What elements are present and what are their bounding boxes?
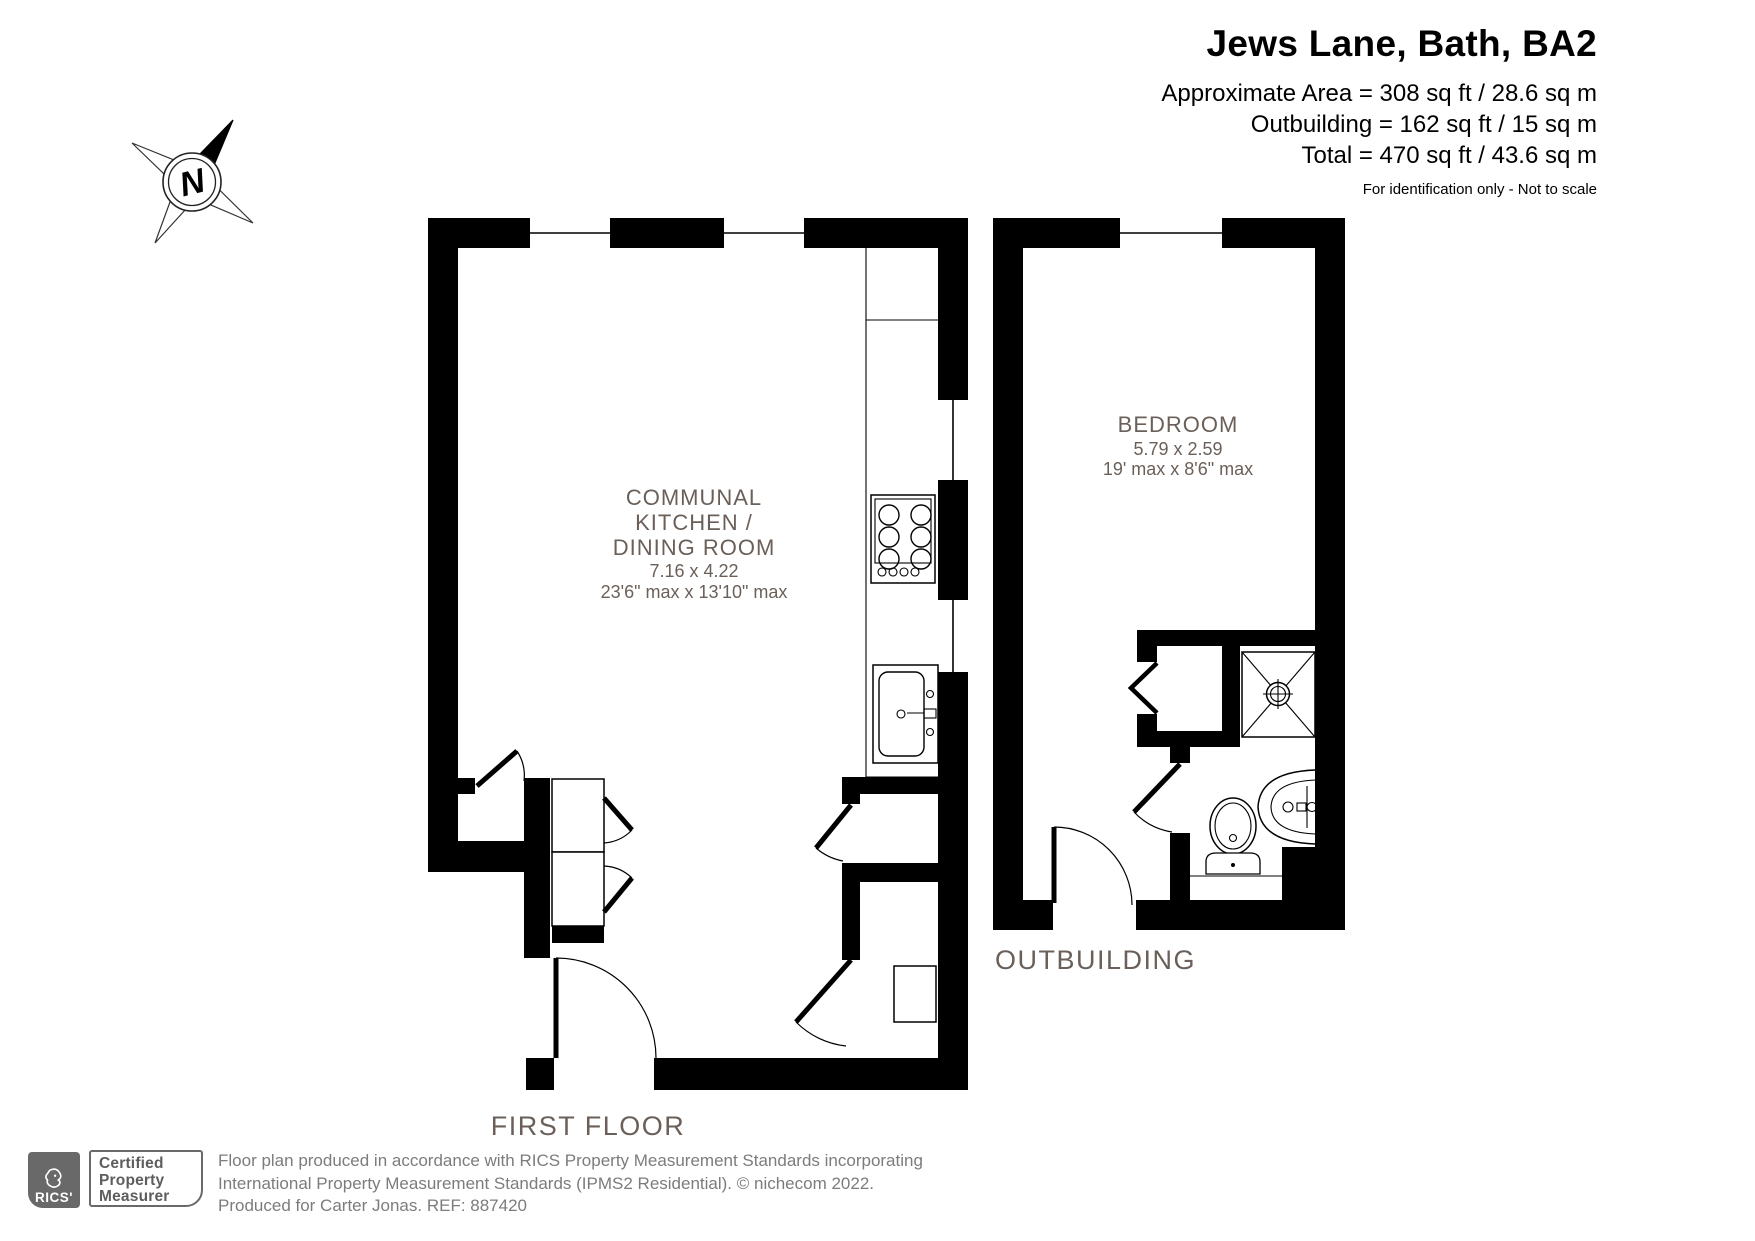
bifold-door: [1131, 663, 1157, 713]
certified-measurer-badge: Certified Property Measurer: [89, 1150, 203, 1207]
window: [938, 600, 968, 672]
kitchen-dims-imperial: 23'6" max x 13'10" max: [601, 582, 788, 602]
rics-lion-icon: [41, 1167, 67, 1191]
door-swing: [477, 751, 524, 786]
wall-segment: [1137, 630, 1315, 646]
wall-segment: [1137, 731, 1240, 747]
kitchen-dims-metric: 7.16 x 4.22: [649, 561, 738, 581]
wall-segment: [1137, 714, 1157, 731]
bedroom-dims-metric: 5.79 x 2.59: [1133, 439, 1222, 459]
outbuilding-title: OUTBUILDING: [995, 945, 1196, 975]
footer-line3: Produced for Carter Jonas. REF: 887420: [218, 1195, 923, 1218]
badge-line1: Certified: [99, 1156, 201, 1173]
first-floor-title: FIRST FLOOR: [491, 1111, 686, 1141]
door-swing: [796, 960, 851, 1046]
wall-segment: [428, 218, 968, 248]
window: [1120, 218, 1222, 248]
bedroom-label: BEDROOM 5.79 x 2.59 19' max x 8'6" max: [1103, 412, 1253, 479]
door-swing: [556, 958, 656, 1058]
rics-logo: RICS': [28, 1152, 80, 1208]
wall-segment: [842, 777, 860, 804]
cupboard: [552, 852, 604, 926]
footer-line2: International Property Measurement Stand…: [218, 1173, 923, 1196]
wall-segment: [842, 863, 860, 960]
wall-segment: [1282, 847, 1345, 930]
first-floor-building: [428, 218, 968, 1090]
wall-segment: [1170, 747, 1190, 763]
wall-segment: [654, 1058, 968, 1090]
window: [530, 218, 610, 248]
wall-segment: [1136, 900, 1282, 930]
kitchen-name-line2: KITCHEN /: [635, 510, 753, 535]
door-swing: [816, 805, 851, 861]
wall-segment: [993, 900, 1053, 930]
window: [938, 400, 968, 480]
kitchen-label: COMMUNAL KITCHEN / DINING ROOM 7.16 x 4.…: [601, 485, 788, 602]
kitchen-name-line3: DINING ROOM: [613, 535, 776, 560]
floor-plan: N: [0, 0, 1755, 1241]
compass-icon: N: [132, 120, 253, 243]
footer-line1: Floor plan produced in accordance with R…: [218, 1150, 923, 1173]
window: [724, 218, 804, 248]
floorplan-page: Jews Lane, Bath, BA2 Approximate Area = …: [0, 0, 1755, 1241]
wall-segment: [1222, 646, 1240, 731]
shower: [1242, 652, 1315, 737]
bedroom-dims-imperial: 19' max x 8'6" max: [1103, 459, 1253, 479]
bedroom-name: BEDROOM: [1118, 412, 1239, 437]
door-swing: [1134, 764, 1180, 832]
cupboard-door: [604, 866, 632, 912]
wall-segment: [1315, 218, 1345, 930]
footer-disclaimer: Floor plan produced in accordance with R…: [218, 1150, 923, 1218]
door-swing: [1054, 827, 1132, 905]
cupboard: [552, 779, 604, 852]
badge-line2: Property: [99, 1173, 201, 1190]
kitchen-name-line1: COMMUNAL: [626, 485, 762, 510]
wall-segment: [526, 1058, 554, 1090]
wall-segment: [993, 218, 1023, 903]
cupboard-door: [604, 798, 632, 843]
hob: [871, 495, 935, 583]
rics-wordmark: RICS': [35, 1191, 73, 1204]
outbuilding-building: [993, 218, 1345, 930]
basin: [1258, 770, 1317, 844]
wall-segment: [1170, 833, 1190, 903]
badge-line3: Measurer: [99, 1189, 201, 1206]
wall-segment: [428, 218, 458, 872]
wall-segment: [1137, 646, 1157, 662]
wall-segment: [458, 778, 475, 794]
sink: [873, 665, 938, 763]
wall-segment: [524, 778, 550, 958]
fixture-box: [894, 966, 936, 1022]
wall-segment: [552, 926, 604, 943]
